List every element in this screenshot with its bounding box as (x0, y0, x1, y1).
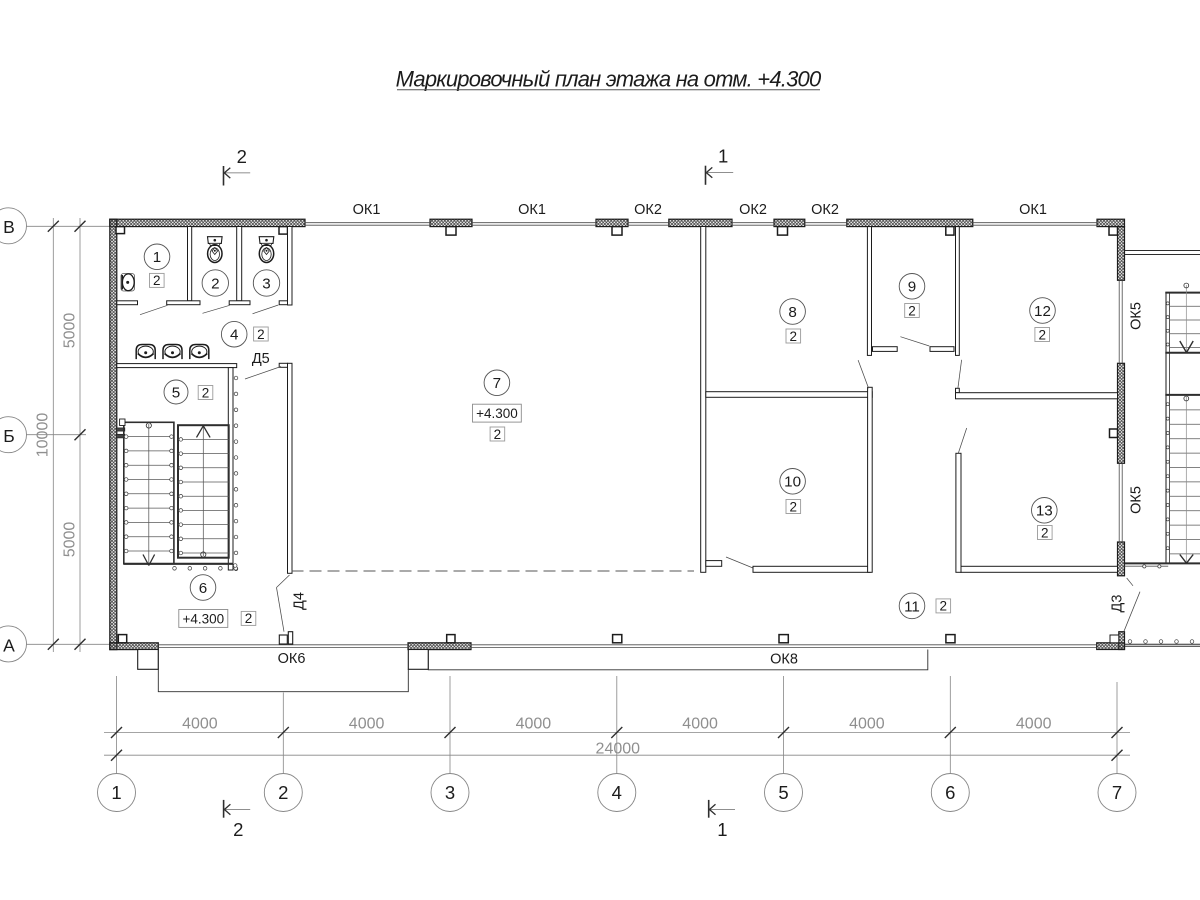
svg-text:+4.300: +4.300 (476, 406, 518, 421)
svg-text:4000: 4000 (182, 716, 218, 733)
svg-text:1: 1 (718, 146, 728, 167)
svg-text:+4.300: +4.300 (182, 611, 224, 626)
svg-text:4000: 4000 (1016, 716, 1052, 733)
svg-text:13: 13 (1036, 503, 1053, 520)
svg-text:В: В (3, 217, 15, 237)
svg-text:9: 9 (908, 279, 916, 296)
svg-text:ОК5: ОК5 (1129, 486, 1145, 514)
svg-text:4000: 4000 (516, 716, 552, 733)
svg-text:2: 2 (494, 427, 502, 442)
svg-text:5000: 5000 (62, 313, 79, 349)
svg-text:2: 2 (153, 273, 161, 288)
svg-text:8: 8 (788, 304, 796, 321)
svg-text:Д4: Д4 (292, 592, 308, 610)
svg-text:2: 2 (211, 275, 219, 292)
svg-text:2: 2 (278, 782, 288, 803)
svg-text:ОК6: ОК6 (278, 651, 306, 667)
svg-text:ОК2: ОК2 (739, 202, 767, 218)
svg-text:7: 7 (493, 375, 501, 392)
svg-text:2: 2 (245, 611, 253, 626)
svg-text:4000: 4000 (349, 716, 385, 733)
svg-text:6: 6 (199, 580, 207, 597)
svg-text:ОК1: ОК1 (518, 202, 546, 218)
svg-text:6: 6 (945, 782, 955, 803)
svg-text:Маркировочный план этажа на от: Маркировочный план этажа на отм. +4.300 (396, 67, 822, 92)
svg-text:2: 2 (257, 327, 265, 342)
svg-text:1: 1 (717, 819, 727, 840)
svg-text:4: 4 (612, 782, 622, 803)
svg-text:5000: 5000 (62, 522, 79, 558)
svg-text:5: 5 (172, 384, 180, 401)
svg-text:24000: 24000 (596, 741, 641, 758)
svg-text:12: 12 (1034, 303, 1051, 320)
svg-text:10: 10 (784, 474, 801, 491)
svg-text:1: 1 (153, 249, 161, 266)
svg-text:5: 5 (778, 782, 788, 803)
svg-text:ОК2: ОК2 (634, 202, 662, 218)
svg-text:2: 2 (237, 146, 247, 167)
svg-text:4000: 4000 (682, 716, 718, 733)
svg-text:1: 1 (111, 782, 121, 803)
svg-text:3: 3 (262, 275, 270, 292)
svg-text:2: 2 (233, 819, 243, 840)
svg-text:7: 7 (1112, 782, 1122, 803)
svg-text:2: 2 (908, 303, 916, 318)
svg-text:Б: Б (3, 426, 14, 446)
svg-text:2: 2 (202, 385, 210, 400)
svg-text:11: 11 (904, 598, 920, 615)
svg-text:3: 3 (445, 782, 455, 803)
svg-text:2: 2 (940, 599, 948, 614)
svg-text:ОК1: ОК1 (1019, 202, 1047, 218)
svg-text:ОК8: ОК8 (770, 652, 798, 668)
svg-text:Д5: Д5 (252, 351, 270, 367)
svg-text:ОК1: ОК1 (353, 202, 381, 218)
svg-text:ОК2: ОК2 (811, 202, 839, 218)
svg-text:А: А (3, 635, 15, 655)
svg-text:2: 2 (790, 329, 798, 344)
svg-text:2: 2 (790, 499, 798, 514)
svg-text:10000: 10000 (35, 413, 52, 458)
svg-text:ОК5: ОК5 (1129, 302, 1145, 330)
svg-text:4: 4 (230, 327, 238, 344)
svg-text:Д3: Д3 (1110, 595, 1126, 613)
svg-text:2: 2 (1041, 525, 1049, 540)
svg-text:2: 2 (1038, 327, 1046, 342)
svg-text:4000: 4000 (849, 716, 885, 733)
